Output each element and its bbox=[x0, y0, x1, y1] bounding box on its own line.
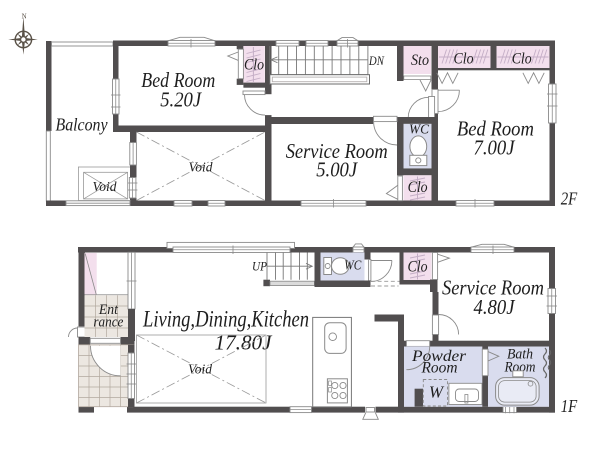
svg-text:Clo: Clo bbox=[244, 56, 264, 73]
svg-text:Room: Room bbox=[421, 360, 458, 377]
svg-text:Clo: Clo bbox=[512, 51, 532, 68]
svg-text:N: N bbox=[22, 13, 27, 21]
svg-text:WC: WC bbox=[409, 123, 430, 138]
svg-text:Sto: Sto bbox=[411, 52, 429, 69]
svg-text:1F: 1F bbox=[561, 396, 578, 416]
svg-text:rance: rance bbox=[93, 314, 124, 330]
svg-text:5.20J: 5.20J bbox=[160, 87, 202, 111]
svg-text:Void: Void bbox=[189, 159, 213, 174]
svg-text:DN: DN bbox=[368, 53, 385, 68]
svg-text:Clo: Clo bbox=[408, 179, 428, 196]
svg-text:UP: UP bbox=[252, 258, 267, 273]
svg-text:17.80J: 17.80J bbox=[215, 330, 274, 354]
svg-text:7.00J: 7.00J bbox=[474, 136, 516, 160]
svg-text:Clo: Clo bbox=[408, 259, 428, 276]
svg-text:Void: Void bbox=[188, 362, 212, 377]
svg-text:WC: WC bbox=[344, 258, 362, 273]
svg-text:5.00J: 5.00J bbox=[316, 158, 358, 182]
svg-text:W: W bbox=[429, 383, 445, 402]
svg-text:Clo: Clo bbox=[454, 51, 474, 68]
svg-text:4.80J: 4.80J bbox=[474, 295, 516, 319]
svg-text:Void: Void bbox=[93, 179, 117, 194]
svg-text:Living,Dining,Kitchen: Living,Dining,Kitchen bbox=[142, 307, 309, 332]
svg-text:2F: 2F bbox=[561, 189, 578, 209]
svg-text:Balcony: Balcony bbox=[56, 115, 108, 135]
